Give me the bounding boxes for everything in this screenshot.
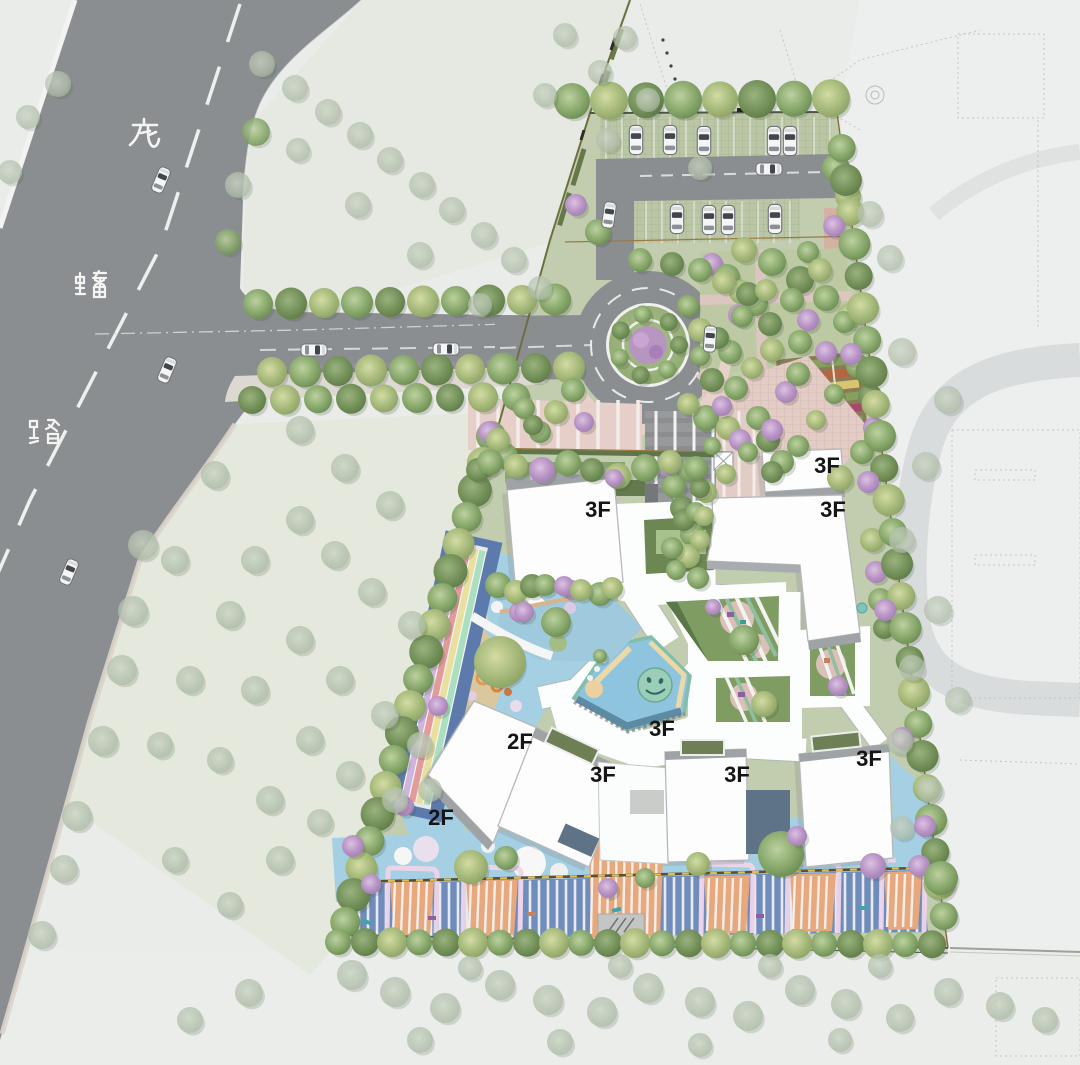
svg-text:3F: 3F [649,716,675,741]
svg-text:3F: 3F [590,762,616,787]
svg-text:3F: 3F [585,497,611,522]
svg-text:3F: 3F [814,453,840,478]
svg-text:3F: 3F [724,762,750,787]
svg-text:2F: 2F [507,729,533,754]
svg-text:2F: 2F [428,805,454,830]
svg-text:3F: 3F [856,746,882,771]
svg-text:3F: 3F [820,497,846,522]
